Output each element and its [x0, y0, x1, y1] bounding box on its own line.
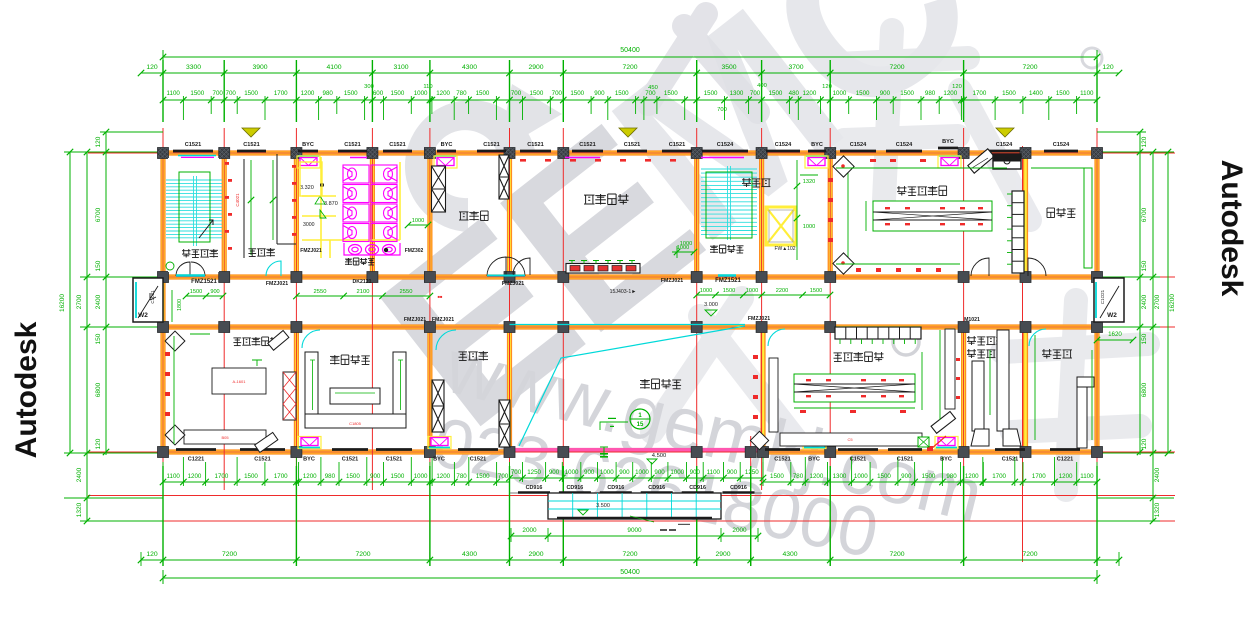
svg-text:2200: 2200: [776, 288, 788, 294]
svg-text:C1521: C1521: [344, 142, 360, 148]
svg-text:1000: 1000: [833, 90, 847, 97]
svg-text:▬▬▬: ▬▬▬: [678, 521, 690, 526]
svg-text:900: 900: [654, 469, 665, 476]
svg-text:2400: 2400: [1141, 294, 1148, 309]
svg-text:1000: 1000: [412, 218, 424, 224]
svg-text:1500: 1500: [664, 90, 678, 97]
svg-text:1000: 1000: [635, 469, 649, 476]
svg-text:1700: 1700: [973, 90, 987, 97]
svg-text:980: 980: [925, 90, 936, 97]
svg-text:FMZJ021: FMZJ021: [300, 248, 322, 254]
svg-text:BYC: BYC: [811, 142, 823, 148]
svg-text:4.500: 4.500: [652, 453, 667, 459]
svg-text:7200: 7200: [622, 64, 637, 71]
svg-text:120: 120: [95, 136, 102, 147]
svg-text:700: 700: [511, 90, 522, 97]
svg-text:900: 900: [727, 469, 738, 476]
svg-text:700: 700: [750, 90, 761, 97]
svg-text:1700: 1700: [215, 473, 229, 480]
svg-text:C1524: C1524: [850, 142, 867, 148]
svg-text:FMZJ021: FMZJ021: [748, 316, 770, 322]
svg-text:1800: 1800: [177, 299, 183, 311]
svg-text:C1521: C1521: [579, 142, 595, 148]
svg-text:1700: 1700: [992, 473, 1006, 480]
svg-text:BYC: BYC: [441, 142, 453, 148]
svg-text:C4021: C4021: [235, 193, 240, 207]
svg-text:3300: 3300: [186, 64, 201, 71]
svg-text:15J403-1►: 15J403-1►: [610, 289, 637, 295]
svg-text:W2: W2: [138, 312, 148, 319]
svg-text:900: 900: [584, 469, 595, 476]
svg-text:50400: 50400: [620, 569, 640, 576]
svg-text:C1521: C1521: [483, 142, 499, 148]
svg-text:4300: 4300: [462, 551, 477, 558]
svg-text:3000: 3000: [303, 222, 315, 228]
svg-text:1300: 1300: [833, 473, 847, 480]
svg-text:1500: 1500: [723, 288, 735, 294]
svg-text:1500: 1500: [615, 90, 629, 97]
svg-text:2900: 2900: [528, 551, 543, 558]
svg-text:900: 900: [619, 469, 630, 476]
svg-text:1320: 1320: [1154, 502, 1161, 517]
svg-text:900: 900: [690, 469, 701, 476]
svg-text:C1521: C1521: [669, 142, 685, 148]
svg-text:A-1601: A-1601: [233, 379, 247, 384]
svg-text:150: 150: [95, 260, 102, 271]
svg-text:1200: 1200: [301, 90, 315, 97]
svg-text:1100: 1100: [167, 473, 181, 480]
svg-text:C1021: C1021: [150, 290, 155, 304]
svg-text:1200: 1200: [436, 473, 450, 480]
svg-text:3100: 3100: [393, 64, 408, 71]
svg-text:900: 900: [370, 473, 381, 480]
svg-text:700: 700: [511, 469, 522, 476]
svg-text:C5: C5: [847, 437, 853, 442]
svg-text:7200: 7200: [1022, 551, 1037, 558]
svg-text:1100: 1100: [167, 90, 181, 97]
svg-text:700: 700: [226, 90, 237, 97]
svg-text:FMZJ021: FMZJ021: [432, 317, 454, 323]
svg-text:110: 110: [423, 84, 432, 90]
svg-text:1500: 1500: [1056, 90, 1070, 97]
svg-text:150: 150: [1141, 260, 1148, 271]
svg-text:2550: 2550: [314, 289, 327, 295]
svg-text:780: 780: [456, 90, 467, 97]
svg-text:1700: 1700: [274, 473, 288, 480]
svg-text:1500: 1500: [570, 90, 584, 97]
svg-text:BYC: BYC: [808, 457, 820, 463]
svg-text:CD916: CD916: [689, 485, 706, 491]
svg-text:2700: 2700: [76, 294, 83, 309]
svg-text:3.870: 3.870: [324, 201, 338, 207]
svg-text:C1521: C1521: [342, 457, 358, 463]
svg-text:400: 400: [757, 83, 767, 89]
svg-text:450: 450: [648, 85, 658, 91]
svg-text:M1021: M1021: [964, 317, 980, 323]
svg-text:6700: 6700: [95, 207, 102, 222]
svg-text:480: 480: [789, 90, 800, 97]
svg-text:1500: 1500: [900, 90, 914, 97]
svg-text:1200: 1200: [943, 90, 957, 97]
svg-text:1200: 1200: [188, 473, 202, 480]
svg-text:120: 120: [1102, 64, 1114, 71]
svg-text:2900: 2900: [528, 64, 543, 71]
svg-text:7200: 7200: [355, 551, 370, 558]
svg-text:C1Ο21: C1Ο21: [1100, 289, 1105, 304]
svg-text:C1521: C1521: [1002, 457, 1018, 463]
svg-text:C1521: C1521: [624, 142, 640, 148]
svg-text:CD916: CD916: [607, 485, 624, 491]
svg-text:1200: 1200: [803, 90, 817, 97]
svg-text:C1521: C1521: [243, 142, 259, 148]
svg-text:2400: 2400: [76, 467, 83, 482]
svg-text:1620: 1620: [1108, 331, 1122, 338]
svg-text:C1521: C1521: [470, 457, 486, 463]
svg-text:C1805: C1805: [349, 421, 362, 426]
svg-text:1200: 1200: [303, 473, 317, 480]
svg-text:3.320: 3.320: [300, 185, 314, 191]
svg-text:16200: 16200: [59, 294, 66, 312]
svg-text:C1524: C1524: [1053, 142, 1070, 148]
svg-text:1500: 1500: [856, 90, 870, 97]
svg-text:120: 120: [146, 64, 158, 71]
svg-text:1500: 1500: [922, 473, 936, 480]
svg-text:150: 150: [1141, 333, 1148, 344]
svg-text:C1524: C1524: [717, 142, 734, 148]
svg-text:150: 150: [95, 333, 102, 344]
svg-text:1000: 1000: [803, 224, 815, 230]
svg-text:6800: 6800: [1141, 382, 1148, 397]
svg-text:1320: 1320: [803, 179, 815, 185]
svg-text:1000: 1000: [414, 473, 428, 480]
svg-text:2700: 2700: [1154, 294, 1161, 309]
svg-text:2550: 2550: [400, 289, 413, 295]
svg-text:C1521: C1521: [254, 457, 270, 463]
svg-text:1000: 1000: [414, 90, 428, 97]
svg-text:4100: 4100: [326, 64, 341, 71]
svg-text:900: 900: [594, 90, 605, 97]
svg-text:7200: 7200: [1022, 64, 1037, 71]
svg-text:6700: 6700: [1141, 207, 1148, 222]
svg-text:C1221: C1221: [1057, 457, 1073, 463]
svg-text:900: 900: [880, 90, 891, 97]
svg-text:2900: 2900: [715, 551, 730, 558]
svg-text:1000: 1000: [565, 469, 579, 476]
svg-text:780: 780: [456, 473, 467, 480]
svg-text:7200: 7200: [889, 551, 904, 558]
svg-text:1000: 1000: [680, 241, 692, 247]
svg-text:120: 120: [146, 551, 158, 558]
svg-text:Autodesk: Autodesk: [10, 321, 43, 458]
svg-text:7200: 7200: [222, 551, 237, 558]
svg-text:1200: 1200: [1059, 473, 1073, 480]
svg-text:1500: 1500: [244, 90, 258, 97]
svg-text:1100: 1100: [1080, 473, 1094, 480]
svg-text:980: 980: [323, 90, 334, 97]
svg-text:120: 120: [95, 438, 102, 449]
svg-text:1500: 1500: [346, 473, 360, 480]
svg-text:B05: B05: [221, 435, 229, 440]
svg-text:1100: 1100: [1080, 90, 1094, 97]
svg-text:DK2121: DK2121: [352, 279, 371, 285]
svg-text:C1521: C1521: [527, 142, 543, 148]
svg-text:120: 120: [822, 84, 832, 90]
svg-text:600: 600: [373, 90, 384, 97]
svg-text:1500: 1500: [476, 473, 490, 480]
svg-text:16200: 16200: [1169, 294, 1176, 312]
svg-text:FMZ302: FMZ302: [405, 248, 424, 254]
svg-text:700: 700: [717, 107, 727, 113]
svg-text:1400: 1400: [1029, 90, 1043, 97]
svg-text:980: 980: [325, 473, 336, 480]
svg-text:1000: 1000: [746, 288, 758, 294]
svg-text:120: 120: [1141, 136, 1148, 147]
svg-text:BYC: BYC: [433, 457, 445, 463]
svg-text:CD916: CD916: [648, 485, 665, 491]
svg-text:1200: 1200: [436, 90, 450, 97]
svg-text:1250: 1250: [527, 469, 541, 476]
svg-text:1000: 1000: [854, 473, 868, 480]
svg-text:300: 300: [364, 84, 374, 90]
svg-text:1500: 1500: [190, 289, 202, 295]
svg-text:1500: 1500: [810, 288, 822, 294]
svg-text:C1524: C1524: [896, 142, 913, 148]
svg-text:C1521: C1521: [386, 457, 402, 463]
svg-text:50400: 50400: [620, 47, 640, 54]
svg-text:1500: 1500: [704, 90, 718, 97]
svg-text:4300: 4300: [782, 551, 797, 558]
svg-text:1200: 1200: [965, 473, 979, 480]
svg-text:900: 900: [901, 473, 912, 480]
svg-text:BYC: BYC: [942, 139, 954, 145]
svg-text:120: 120: [952, 84, 962, 90]
svg-text:3900: 3900: [252, 64, 267, 71]
svg-text:FMZ1521: FMZ1521: [715, 278, 741, 284]
svg-text:1700: 1700: [274, 90, 288, 97]
svg-text:1500: 1500: [344, 90, 358, 97]
svg-text:3700: 3700: [788, 64, 803, 71]
svg-text:1300: 1300: [730, 90, 744, 97]
svg-text:FMZJ021: FMZJ021: [661, 278, 683, 284]
svg-text:1500: 1500: [244, 473, 258, 480]
svg-text:1000: 1000: [670, 469, 684, 476]
svg-text:■■: ■■: [438, 294, 443, 299]
svg-text:1500: 1500: [391, 90, 405, 97]
svg-text:W2: W2: [1107, 312, 1117, 319]
svg-text:1000: 1000: [600, 469, 614, 476]
svg-text:C1521: C1521: [185, 142, 201, 148]
svg-text:3.000: 3.000: [704, 302, 718, 308]
svg-text:▬▬: ▬▬: [608, 415, 616, 420]
svg-text:1100: 1100: [707, 469, 721, 476]
svg-text:7200: 7200: [622, 551, 637, 558]
svg-text:1500: 1500: [190, 90, 204, 97]
svg-text:FMZ1521: FMZ1521: [191, 279, 217, 285]
svg-text:FMZJ021: FMZJ021: [404, 317, 426, 323]
svg-text:2400: 2400: [95, 294, 102, 309]
svg-text:7200: 7200: [889, 64, 904, 71]
svg-text:3.500: 3.500: [596, 503, 610, 509]
svg-text:FW▲102: FW▲102: [774, 246, 795, 252]
svg-text:2400: 2400: [1154, 467, 1161, 482]
svg-text:C1521: C1521: [389, 142, 405, 148]
svg-text:C1521: C1521: [897, 457, 913, 463]
svg-text:▬: ▬: [610, 423, 614, 428]
svg-text:2000: 2000: [732, 527, 747, 534]
svg-text:C1524: C1524: [775, 142, 792, 148]
svg-text:2000: 2000: [522, 527, 537, 534]
svg-text:BYC: BYC: [940, 457, 952, 463]
svg-text:CD916: CD916: [526, 485, 543, 491]
svg-text:15: 15: [637, 422, 644, 428]
svg-text:C1524: C1524: [996, 142, 1013, 148]
svg-text:980: 980: [946, 473, 957, 480]
svg-text:C1521: C1521: [850, 457, 866, 463]
svg-text:780: 780: [793, 473, 804, 480]
svg-text:1500: 1500: [769, 90, 783, 97]
svg-text:900: 900: [549, 469, 560, 476]
svg-text:1500: 1500: [770, 473, 784, 480]
svg-text:120: 120: [1141, 438, 1148, 449]
svg-text:1500: 1500: [1002, 90, 1016, 97]
svg-text:1000: 1000: [700, 288, 712, 294]
svg-text:CD916: CD916: [730, 485, 747, 491]
svg-text:1500: 1500: [476, 90, 490, 97]
svg-text:C1521: C1521: [774, 457, 790, 463]
svg-text:700: 700: [552, 90, 563, 97]
svg-text:1500: 1500: [877, 473, 891, 480]
svg-text:1500: 1500: [530, 90, 544, 97]
svg-text:1700: 1700: [1032, 473, 1046, 480]
svg-text:1320: 1320: [76, 502, 83, 517]
svg-text:4300: 4300: [462, 64, 477, 71]
svg-text:2100: 2100: [357, 289, 370, 295]
svg-text:1200: 1200: [810, 473, 824, 480]
svg-text:900: 900: [210, 289, 219, 295]
svg-text:Autodesk: Autodesk: [1215, 160, 1248, 297]
svg-text:1500: 1500: [391, 473, 405, 480]
svg-text:700: 700: [645, 90, 656, 97]
svg-text:6800: 6800: [95, 382, 102, 397]
svg-text:BYC: BYC: [302, 142, 314, 148]
svg-text:700: 700: [498, 473, 509, 480]
svg-text:9000: 9000: [627, 527, 642, 534]
svg-text:700: 700: [213, 90, 224, 97]
svg-text:1250: 1250: [745, 469, 759, 476]
svg-text:FMZJ021: FMZJ021: [266, 281, 288, 287]
svg-text:BYC: BYC: [303, 457, 315, 463]
svg-text:CD916: CD916: [567, 485, 584, 491]
svg-text:FMZJ021: FMZJ021: [502, 281, 524, 287]
svg-text:C1221: C1221: [188, 457, 204, 463]
svg-text:3500: 3500: [721, 64, 736, 71]
